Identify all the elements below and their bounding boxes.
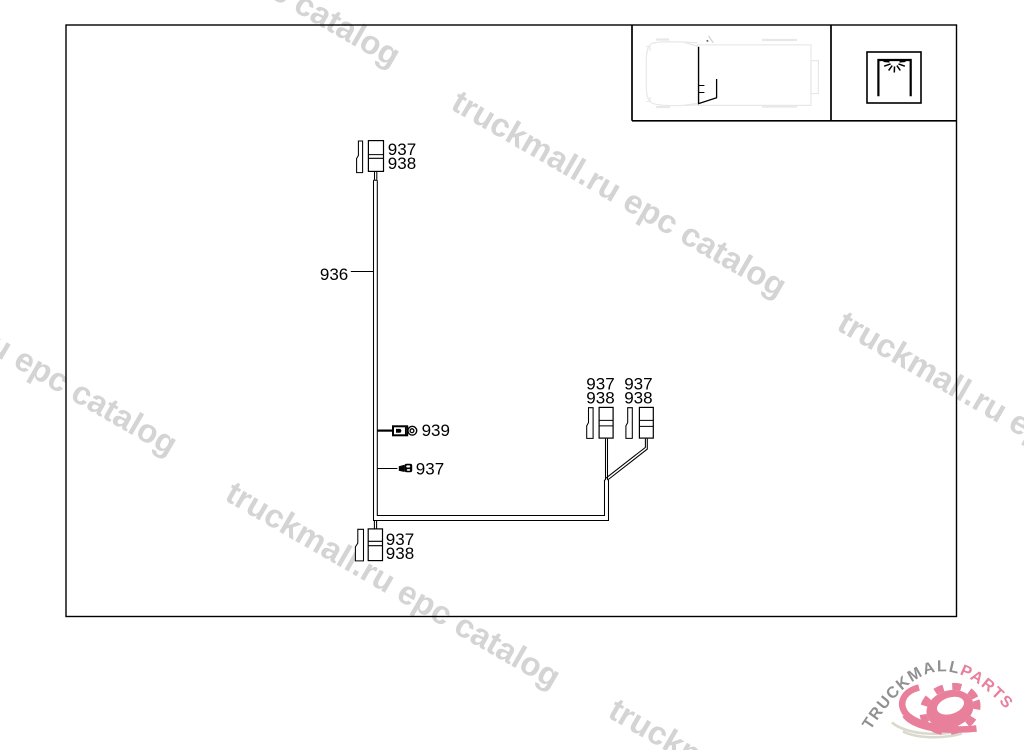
svg-text:938: 938	[586, 388, 614, 407]
svg-text:truckmall.ru epc catalog: truckmall.ru epc catalog	[832, 303, 1024, 525]
svg-text:938: 938	[386, 544, 414, 563]
svg-text:937: 937	[416, 459, 444, 478]
svg-text:truckmall.ru epc catalog: truckmall.ru epc catalog	[446, 82, 793, 304]
svg-text:truckmall.ru epc catalog: truckmall.ru epc catalog	[0, 240, 184, 462]
svg-text:truckmall.ru epc catalog: truckmall.ru epc catalog	[220, 473, 567, 695]
svg-text:938: 938	[388, 154, 416, 173]
svg-text:938: 938	[624, 388, 652, 407]
svg-text:936: 936	[320, 265, 348, 284]
svg-text:939: 939	[422, 421, 450, 440]
svg-text:truckmall.ru epc catalog: truckmall.ru epc catalog	[60, 0, 407, 74]
